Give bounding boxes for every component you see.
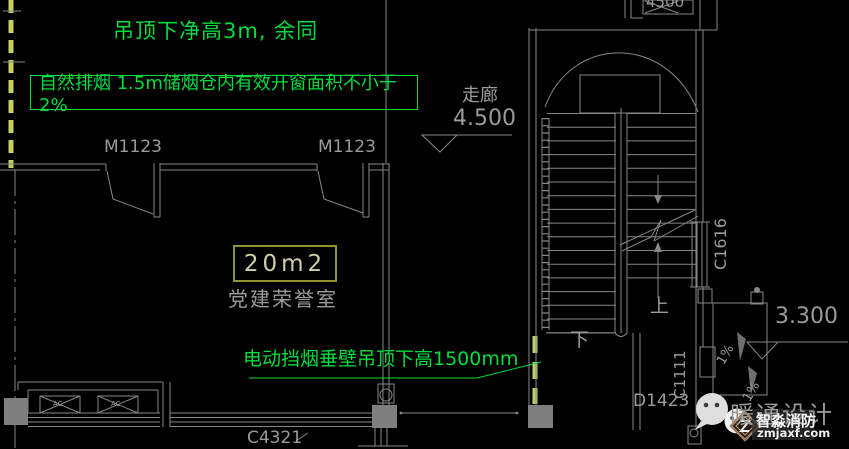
ac-unit-label-left: AC bbox=[53, 401, 63, 409]
watermark-url: zmjaxf.com bbox=[757, 426, 830, 440]
stair-up-label: 上 bbox=[650, 296, 669, 317]
window-c1616 bbox=[690, 222, 712, 303]
bottom-window-band bbox=[4, 382, 372, 448]
window-label-c1616: C1616 bbox=[712, 218, 730, 270]
smoke-vent-note: 自然排烟 1.5m储烟仓内有效开窗面积不小于2% bbox=[39, 69, 417, 116]
ceiling-height-note: 吊顶下净高3m, 余同 bbox=[113, 20, 318, 43]
room-area-box: 20m2 bbox=[233, 245, 337, 282]
door-label-d1423: D1423 bbox=[633, 392, 689, 411]
top-partial-label: 4500 bbox=[646, 0, 684, 11]
corridor-elevation-value: 4.500 bbox=[453, 107, 516, 131]
staircase bbox=[542, 53, 698, 337]
landing-elevation-value: 3.300 bbox=[775, 305, 838, 329]
door-label-m1123-left: M1123 bbox=[104, 138, 162, 157]
smoke-vent-note-box: 自然排烟 1.5m储烟仓内有效开窗面积不小于2% bbox=[30, 75, 418, 110]
elevation-marker-4500 bbox=[422, 135, 512, 152]
door-label-m1123-right: M1123 bbox=[318, 138, 376, 157]
room-area-value: 20m2 bbox=[244, 251, 326, 277]
room-name-label: 党建荣誉室 bbox=[228, 288, 338, 310]
elevation-marker-3300 bbox=[747, 342, 848, 359]
smoke-curtain-note: 电动挡烟垂壁吊顶下高1500mm bbox=[243, 349, 518, 370]
floor-plan-canvas: 吊顶下净高3m, 余同 自然排烟 1.5m储烟仓内有效开窗面积不小于2% 电动挡… bbox=[0, 0, 849, 449]
structural-columns bbox=[358, 384, 553, 446]
window-label-c4321: C4321 bbox=[247, 429, 302, 448]
dimension-line bbox=[400, 412, 519, 415]
stair-down-label: 下 bbox=[570, 330, 589, 351]
stair-door-frame bbox=[633, 333, 701, 444]
top-wall-and-doors bbox=[0, 163, 389, 217]
ac-unit-label-right: AC bbox=[111, 401, 121, 409]
corridor-label: 走廊 bbox=[462, 86, 498, 106]
